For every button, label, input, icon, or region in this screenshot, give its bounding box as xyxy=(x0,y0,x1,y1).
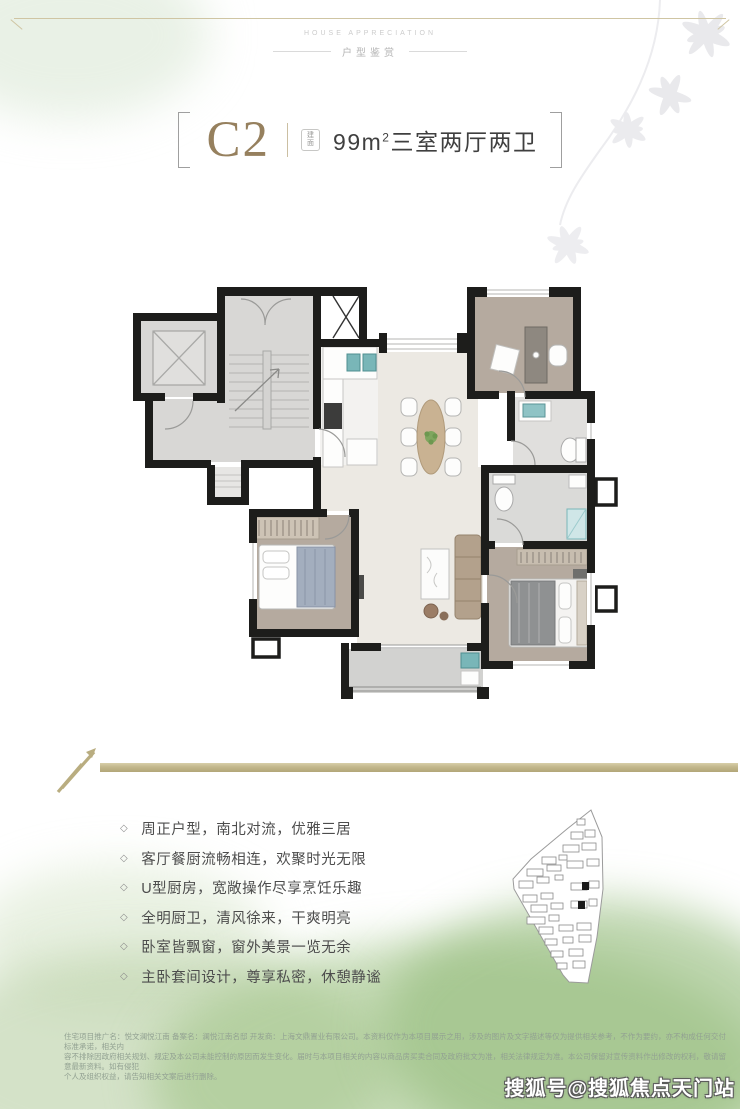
divider-leaf-icon xyxy=(56,742,100,794)
watermark: 搜狐号@搜狐焦点天门站 xyxy=(504,1072,735,1101)
feature-item: ◇U型厨房，宽敞操作尽享烹饪乐趣 xyxy=(120,873,381,903)
site-plan xyxy=(487,797,697,1002)
unit-name: C2 xyxy=(207,115,271,166)
floor-plan xyxy=(133,287,640,705)
feature-text: 全明厨卫，清风徐来，干爽明亮 xyxy=(141,907,351,928)
header-separator xyxy=(287,123,288,157)
diamond-bullet-icon: ◇ xyxy=(120,823,128,834)
bracket-right-icon xyxy=(550,112,562,168)
eyebrow-english: HOUSE APPRECIATION xyxy=(0,30,740,37)
diamond-bullet-icon: ◇ xyxy=(120,941,128,952)
diamond-bullet-icon: ◇ xyxy=(120,971,128,982)
eyebrow-chinese: 户型鉴赏 xyxy=(342,44,398,59)
eyebrow-line-left xyxy=(273,51,331,52)
feature-item: ◇主卧套间设计，尊享私密，休憩静谧 xyxy=(120,962,381,992)
feature-list: ◇周正户型，南北对流，优雅三居 ◇客厅餐厨流畅相连，欢聚时光无限 ◇U型厨房，宽… xyxy=(120,814,381,991)
feature-text: 客厅餐厨流畅相连，欢聚时光无限 xyxy=(141,848,366,869)
feature-item: ◇卧室皆飘窗，窗外美景一览无余 xyxy=(120,932,381,962)
gold-frame xyxy=(14,18,726,19)
area-badge: 建面 xyxy=(301,129,320,151)
feature-text: U型厨房，宽敞操作尽享烹饪乐趣 xyxy=(141,877,362,898)
unit-layout: 三室两厅两卫 xyxy=(390,129,537,155)
feature-item: ◇周正户型，南北对流，优雅三居 xyxy=(120,814,381,844)
unit-header: C2 建面 99m2三室两厅两卫 xyxy=(0,112,740,168)
bracket-left-icon xyxy=(178,112,190,168)
eyebrow-line-right xyxy=(409,51,467,52)
feature-item: ◇全明厨卫，清风徐来，干爽明亮 xyxy=(120,903,381,933)
feature-text: 周正户型，南北对流，优雅三居 xyxy=(141,818,351,839)
gold-divider xyxy=(100,763,738,772)
unit-spec: 99m2三室两厅两卫 xyxy=(333,123,537,157)
unit-area: 99m xyxy=(333,129,382,155)
disclaimer-line: 容不排除因政府相关规划、规定及本公司未能控制的原因而发生变化。届时与本项目相关的… xyxy=(64,1052,726,1072)
diamond-bullet-icon: ◇ xyxy=(120,853,128,864)
diamond-bullet-icon: ◇ xyxy=(120,882,128,893)
feature-item: ◇客厅餐厨流畅相连，欢聚时光无限 xyxy=(120,844,381,874)
feature-text: 卧室皆飘窗，窗外美景一览无余 xyxy=(141,936,351,957)
feature-text: 主卧套间设计，尊享私密，休憩静谧 xyxy=(141,966,381,987)
poster-page: HOUSE APPRECIATION 户型鉴赏 C2 建面 99m2三室两厅两卫 xyxy=(0,0,740,1109)
disclaimer-line: 住宅项目推广名：悦文澜悦江南 备案名：澜悦江南名邸 开发商：上海文鼎置业有限公司… xyxy=(64,1032,726,1052)
diamond-bullet-icon: ◇ xyxy=(120,912,128,923)
eyebrow: HOUSE APPRECIATION 户型鉴赏 xyxy=(0,30,740,59)
